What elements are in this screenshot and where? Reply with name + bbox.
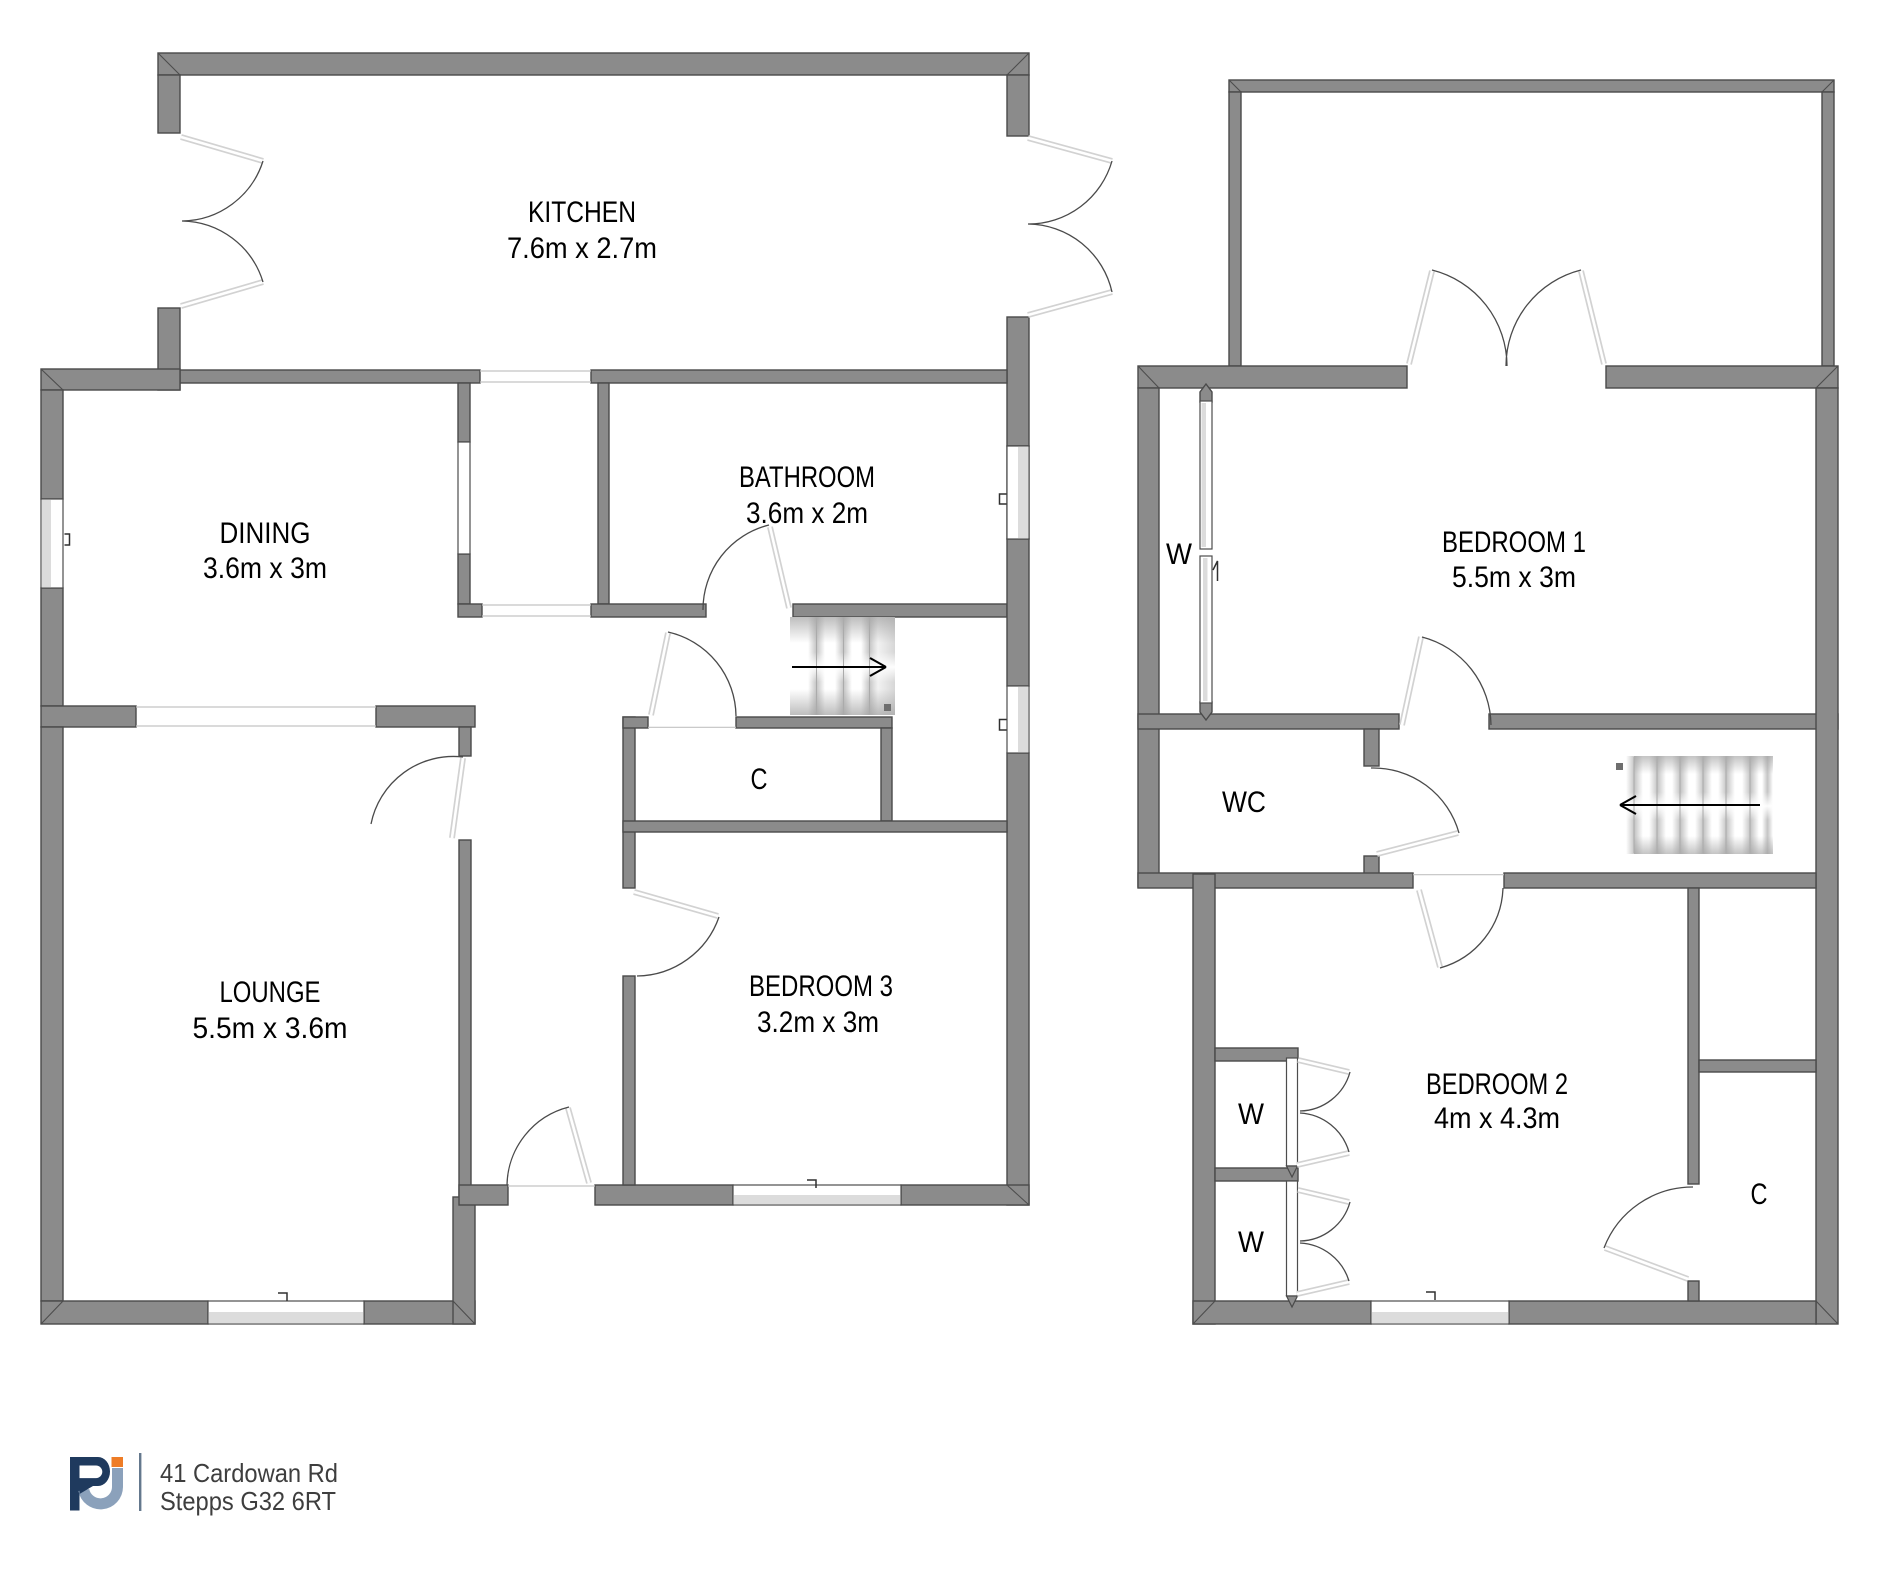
- svg-text:LOUNGE: LOUNGE: [220, 976, 321, 1009]
- svg-text:5.5m x 3m: 5.5m x 3m: [1452, 561, 1576, 594]
- svg-text:7.6m x 2.7m: 7.6m x 2.7m: [507, 232, 657, 265]
- svg-text:5.5m x 3.6m: 5.5m x 3.6m: [193, 1012, 348, 1045]
- svg-text:3.6m x 3m: 3.6m x 3m: [203, 552, 327, 585]
- svg-text:W: W: [1166, 538, 1193, 571]
- svg-text:BEDROOM 1: BEDROOM 1: [1442, 526, 1586, 559]
- svg-text:KITCHEN: KITCHEN: [528, 196, 636, 229]
- svg-text:3.6m x 2m: 3.6m x 2m: [746, 497, 868, 530]
- svg-text:C: C: [1751, 1178, 1768, 1211]
- svg-text:BEDROOM 3: BEDROOM 3: [749, 970, 893, 1003]
- svg-text:W: W: [1238, 1098, 1265, 1131]
- svg-text:41 Cardowan Rd: 41 Cardowan Rd: [160, 1458, 338, 1488]
- svg-text:W: W: [1238, 1226, 1265, 1259]
- svg-text:BEDROOM 2: BEDROOM 2: [1426, 1068, 1568, 1101]
- svg-text:3.2m x 3m: 3.2m x 3m: [757, 1006, 879, 1039]
- svg-text:WC: WC: [1222, 786, 1266, 819]
- svg-text:Stepps G32 6RT: Stepps G32 6RT: [160, 1486, 336, 1516]
- svg-text:DINING: DINING: [220, 517, 311, 550]
- svg-text:BATHROOM: BATHROOM: [739, 461, 875, 494]
- svg-text:4m x 4.3m: 4m x 4.3m: [1434, 1102, 1560, 1135]
- svg-text:C: C: [751, 763, 768, 796]
